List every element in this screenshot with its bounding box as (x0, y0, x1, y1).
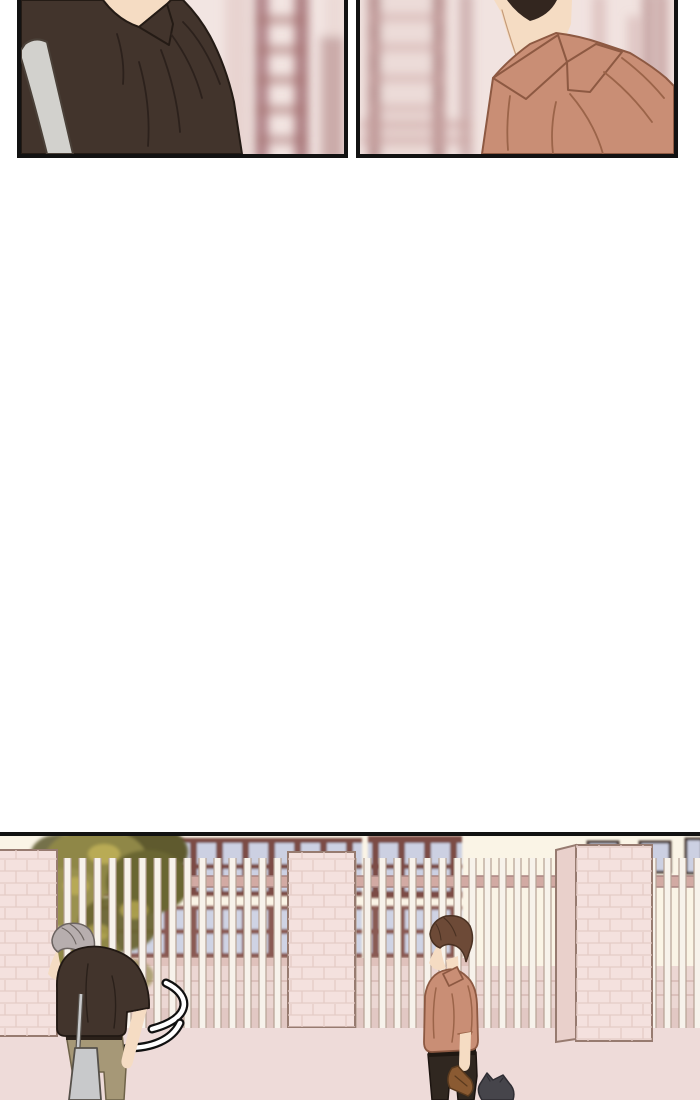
pillar-left (0, 850, 57, 1036)
pillar-middle (288, 852, 355, 1027)
tote-bag (69, 1048, 101, 1100)
comic-page (0, 0, 700, 1100)
comic-panel-top-right (356, 0, 678, 158)
panel-3-art (0, 836, 700, 1100)
forearm-hand (459, 1032, 471, 1071)
panel-1-art (21, 0, 344, 154)
comic-panel-bottom (0, 832, 700, 1100)
pillar-right (556, 845, 652, 1042)
panel-2-art (360, 0, 674, 154)
comic-panel-top-left (17, 0, 348, 158)
